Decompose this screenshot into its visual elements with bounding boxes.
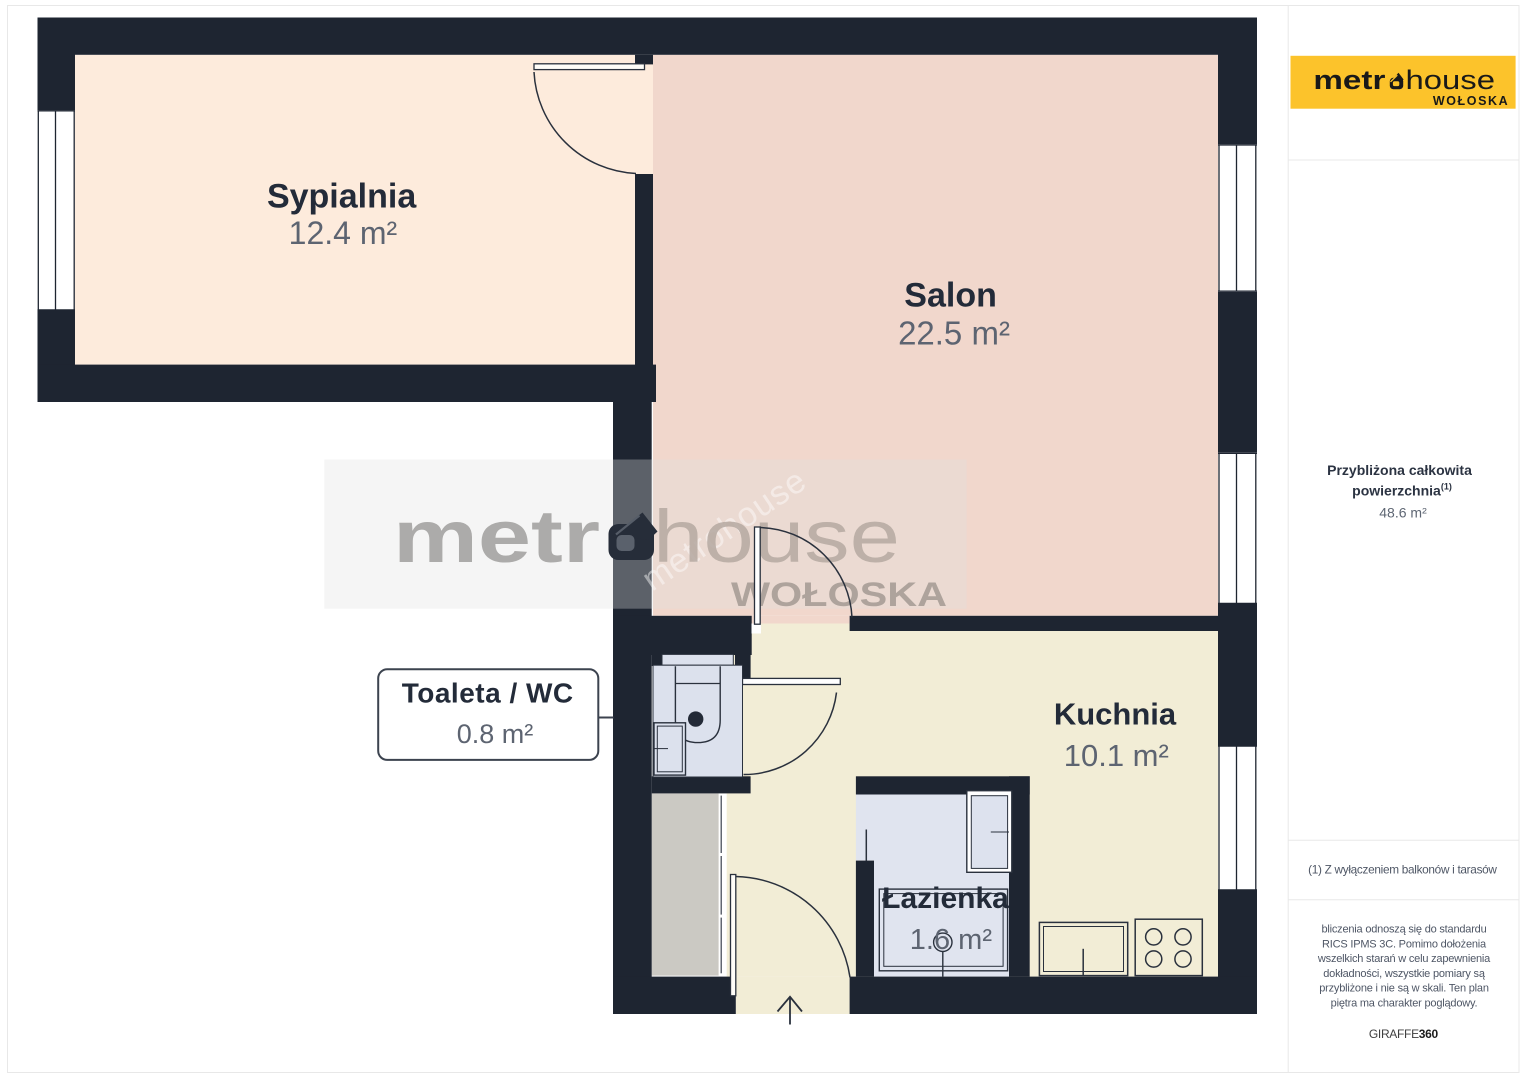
svg-text:RICS IPMS 3C. Pomimo dołożenia: RICS IPMS 3C. Pomimo dołożenia bbox=[1322, 938, 1487, 950]
svg-text:22.5 m²: 22.5 m² bbox=[898, 314, 1010, 351]
svg-text:Toaleta / WC: Toaleta / WC bbox=[402, 678, 574, 709]
svg-text:piętra ma charakter poglądowy.: piętra ma charakter poglądowy. bbox=[1331, 997, 1478, 1009]
svg-text:Kuchnia: Kuchnia bbox=[1054, 697, 1177, 732]
svg-text:metr: metr bbox=[393, 495, 600, 578]
svg-text:przybliżone i nie są w skali.: przybliżone i nie są w skali. Ten plan bbox=[1319, 983, 1489, 995]
svg-text:10.1 m²: 10.1 m² bbox=[1064, 738, 1169, 773]
svg-text:bliczenia odnoszą się do stand: bliczenia odnoszą się do standardu bbox=[1321, 924, 1486, 936]
svg-text:(1) Z wyłączeniem balkonów i t: (1) Z wyłączeniem balkonów i tarasów bbox=[1308, 863, 1497, 877]
svg-text:house: house bbox=[1406, 65, 1496, 95]
svg-text:1.6 m²: 1.6 m² bbox=[910, 924, 993, 956]
svg-text:Przybliżona całkowita: Przybliżona całkowita bbox=[1327, 462, 1472, 478]
svg-text:wszelkich starań w celu zapewn: wszelkich starań w celu zapewnienia bbox=[1317, 953, 1491, 965]
svg-text:powierzchnia(1): powierzchnia(1) bbox=[1352, 482, 1452, 499]
svg-text:Sypialnia: Sypialnia bbox=[267, 178, 417, 216]
svg-text:WOŁOSKA: WOŁOSKA bbox=[1433, 94, 1509, 108]
svg-text:GIRAFFE360: GIRAFFE360 bbox=[1369, 1027, 1439, 1041]
svg-text:12.4 m²: 12.4 m² bbox=[289, 215, 398, 251]
svg-text:metr: metr bbox=[1313, 65, 1386, 95]
svg-text:0.8 m²: 0.8 m² bbox=[457, 719, 534, 749]
svg-text:48.6 m²: 48.6 m² bbox=[1379, 504, 1427, 520]
svg-text:Łazienka: Łazienka bbox=[882, 882, 1009, 915]
svg-text:house: house bbox=[653, 495, 900, 578]
svg-text:Salon: Salon bbox=[904, 277, 997, 315]
svg-text:WOŁOSKA: WOŁOSKA bbox=[731, 576, 947, 614]
svg-text:dokładności, wszystkie pomiary: dokładności, wszystkie pomiary są bbox=[1323, 968, 1486, 980]
